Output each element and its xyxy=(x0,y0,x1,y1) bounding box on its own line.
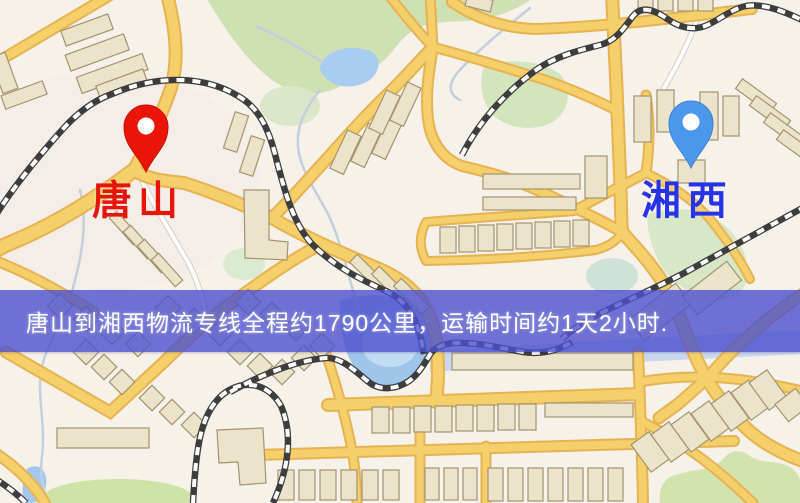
map-canvas xyxy=(0,0,800,503)
route-info-text: 唐山到湘西物流专线全程约1790公里，运输时间约1天2小时. xyxy=(0,304,668,338)
origin-city-label: 唐山 xyxy=(92,181,184,221)
route-info-banner: 唐山到湘西物流专线全程约1790公里，运输时间约1天2小时. xyxy=(0,290,800,352)
logistics-route-map: 唐山到湘西物流专线全程约1790公里，运输时间约1天2小时. 唐山 湘西 xyxy=(0,0,800,503)
destination-city-label: 湘西 xyxy=(641,181,733,221)
